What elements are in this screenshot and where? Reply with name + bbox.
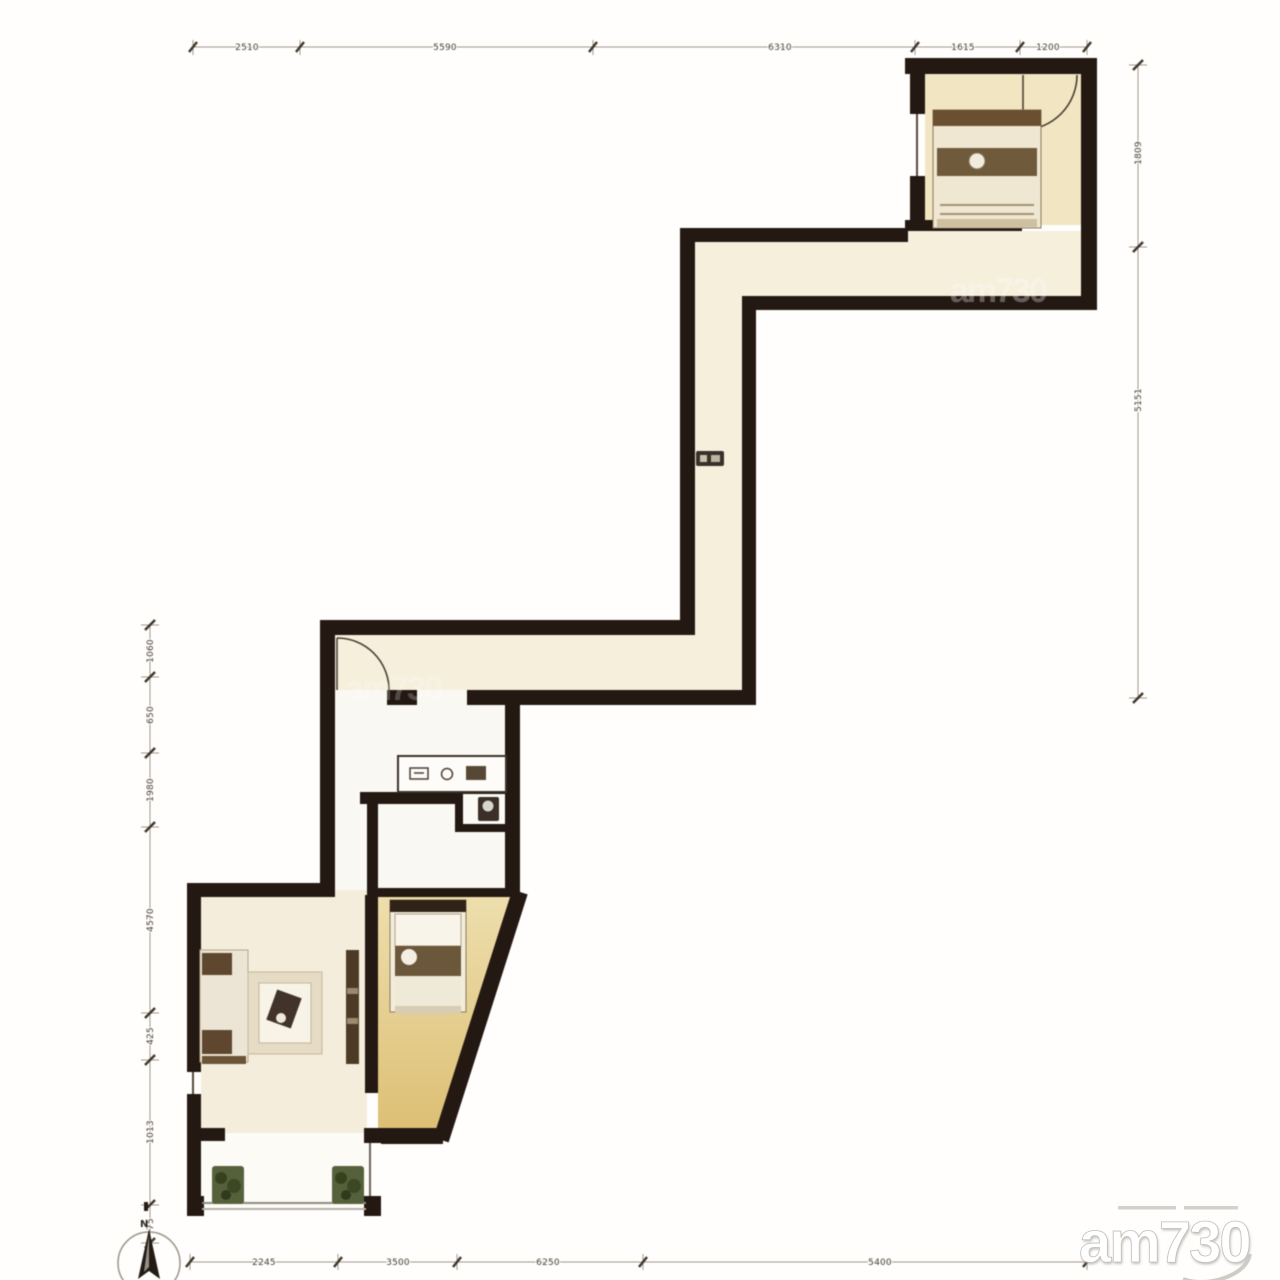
bed-pillow — [395, 914, 461, 946]
dim-label: 1980 — [146, 778, 156, 802]
dim-label: 2245 — [252, 1258, 276, 1268]
plant-leaf — [227, 1179, 241, 1193]
bed-footbar — [937, 219, 1037, 227]
plant-leaf — [221, 1190, 231, 1200]
floorplan-image: 2510 5590 6310 1615 1200 1809 5151 — [0, 0, 1280, 1280]
cabinet-body — [346, 950, 359, 1064]
dim-label: 5590 — [433, 43, 457, 53]
watermark-smalltext — [1184, 1206, 1238, 1210]
faint-watermark: am730 — [950, 272, 1047, 310]
dim-label: 1809 — [1134, 141, 1144, 165]
dimension-chain-right: 1809 5151 — [1129, 60, 1147, 703]
bed-pillow-band — [937, 148, 1037, 176]
wall — [187, 883, 335, 897]
cabinet-gap — [347, 988, 358, 994]
wall — [320, 620, 335, 888]
appliance-door — [483, 801, 494, 812]
wall — [905, 58, 1097, 74]
wall — [187, 1196, 204, 1216]
plant-leaf — [341, 1190, 351, 1200]
dim-label: 1013 — [146, 1120, 156, 1144]
bed-cushion — [969, 153, 985, 169]
bed-cushion — [401, 949, 417, 965]
corridor-label-illegible — [696, 451, 724, 466]
compass-north-label: N — [140, 1219, 148, 1230]
wall — [742, 310, 756, 690]
plant-icon — [332, 1166, 364, 1204]
bed-icon-topright — [933, 110, 1041, 228]
dim-label: 4570 — [146, 908, 156, 932]
dim-label: 1615 — [951, 43, 975, 53]
kitchen-counter-icon — [398, 756, 506, 792]
watermark-brand: am730 — [1079, 1210, 1250, 1275]
dim-label: 1200 — [1036, 43, 1060, 53]
dim-label: 6250 — [536, 1258, 560, 1268]
wall — [381, 1128, 443, 1144]
faint-watermark: am730 — [345, 670, 442, 708]
table-dot — [276, 1013, 286, 1023]
dim-label: 3500 — [386, 1258, 410, 1268]
wall — [910, 58, 925, 114]
wall — [364, 1196, 381, 1216]
dim-label: 5400 — [868, 1258, 892, 1268]
corridor-label-mark — [700, 455, 707, 462]
wall — [1081, 58, 1097, 310]
sofa-icon — [200, 950, 248, 1064]
wall — [365, 895, 378, 1093]
plant-icon — [212, 1166, 244, 1204]
dim-label: 6310 — [768, 43, 792, 53]
wall — [364, 1128, 381, 1143]
wall — [360, 792, 457, 804]
sofa-arm — [202, 1030, 232, 1054]
compass-top-tick — [144, 1202, 148, 1211]
plant-leaf — [347, 1179, 361, 1193]
wall — [680, 228, 908, 242]
dim-label: 1060 — [146, 639, 156, 663]
cabinet-gap — [347, 1018, 358, 1024]
plant-leaf — [335, 1172, 347, 1184]
appliance-icon — [463, 794, 505, 824]
bed-blanket — [395, 976, 461, 1006]
north-compass: N — [118, 1202, 180, 1280]
dim-label: 425 — [146, 1027, 156, 1045]
watermark-smalltext — [1118, 1206, 1176, 1210]
dimension-chain-bottom: 2245 3500 6250 5400 — [186, 1254, 1091, 1270]
corridor-label-mark — [711, 455, 720, 462]
wall — [187, 883, 201, 1072]
floorplan-page: 2510 5590 6310 1615 1200 1809 5151 — [0, 0, 1280, 1280]
sofa-arm — [202, 953, 232, 975]
dimension-chain-top: 2510 5590 6310 1615 1200 — [189, 40, 1091, 55]
wall — [367, 803, 378, 895]
wall — [680, 228, 695, 620]
table-icon — [248, 972, 322, 1054]
dim-label: 2510 — [235, 43, 259, 53]
wall — [378, 888, 520, 897]
plant-leaf — [215, 1172, 227, 1184]
bed-footbar — [395, 1006, 461, 1014]
dimension-chain-left: 1060 650 1980 4570 425 1013 75 — [141, 620, 159, 1248]
watermark-logo: am730 am730 — [1079, 1206, 1251, 1280]
bed-headboard — [390, 900, 466, 912]
sofa-bar — [202, 1056, 246, 1064]
bed-icon-lower — [390, 900, 466, 1014]
cabinet-icon — [346, 950, 359, 1064]
dim-label: 5151 — [1134, 388, 1144, 412]
dim-label: 650 — [146, 706, 156, 724]
wall — [187, 1128, 225, 1141]
stove-glyph — [466, 766, 486, 780]
bed-headboard — [933, 110, 1041, 126]
wall — [320, 620, 695, 635]
